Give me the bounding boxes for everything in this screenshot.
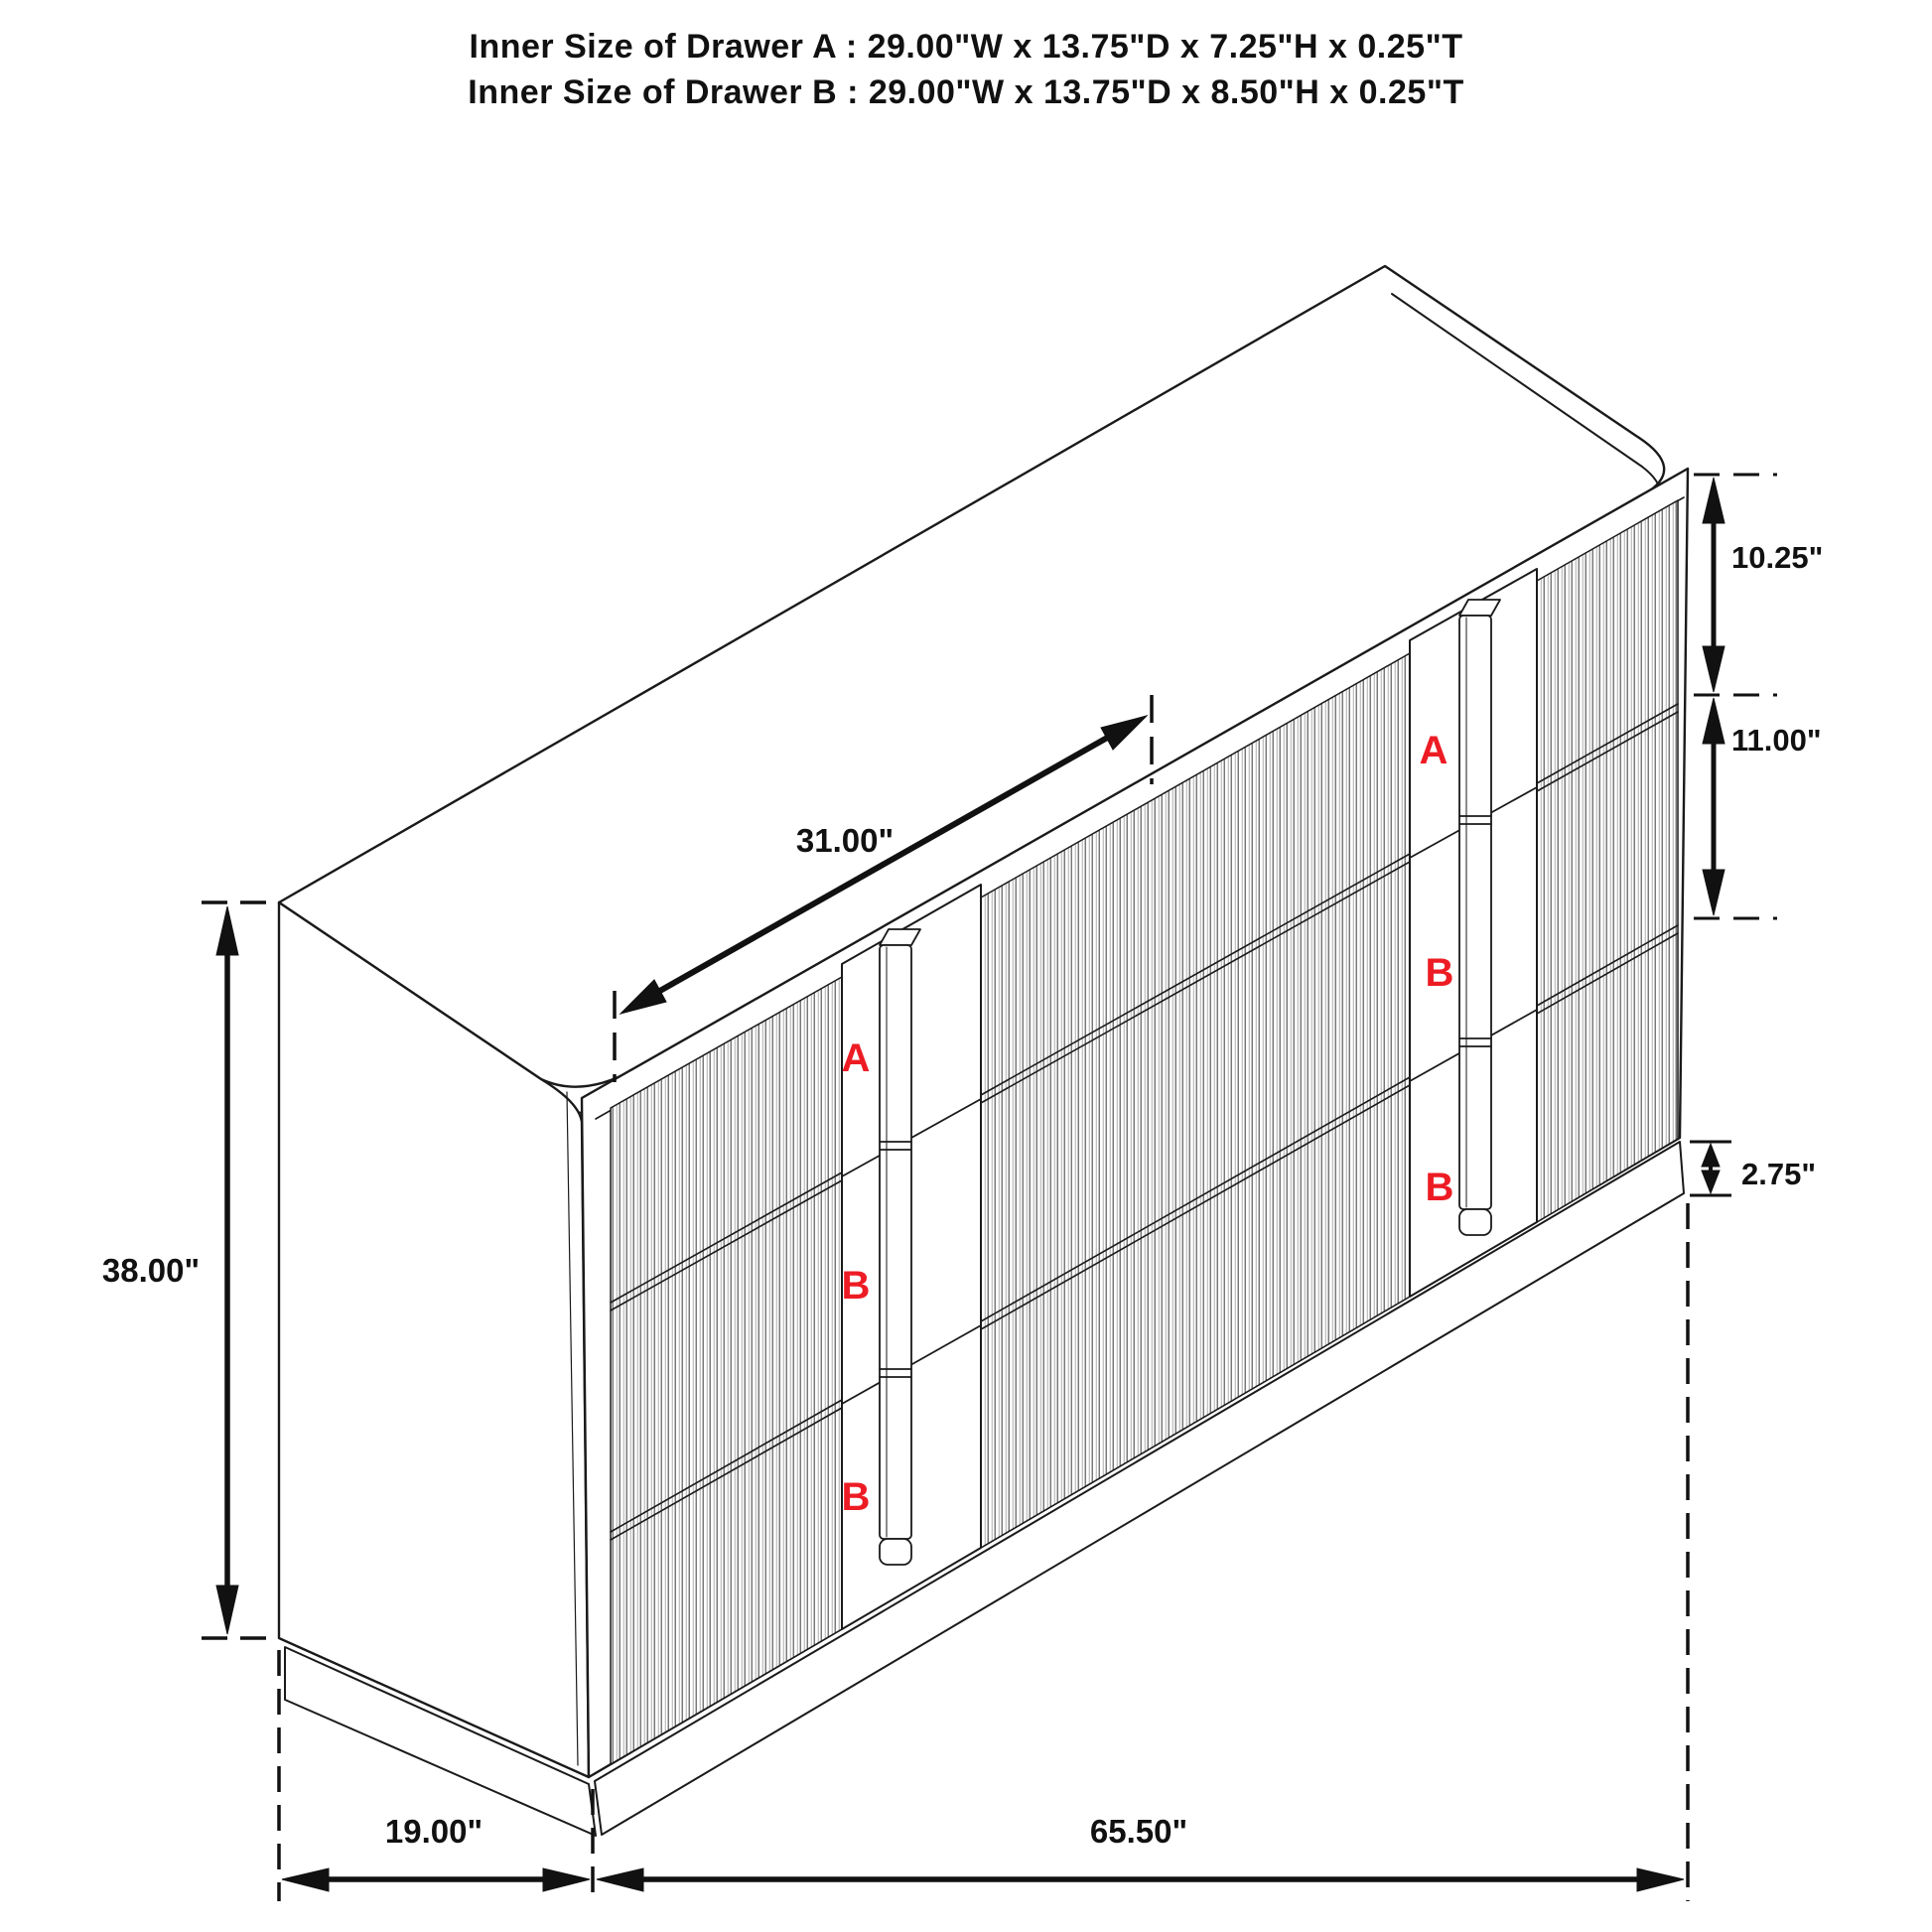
dimension-label-drawer-b-height: 11.00": [1731, 723, 1822, 758]
dimension-label-total-width: 65.50": [1090, 1813, 1187, 1850]
dimension-label-top-drawer-width: 31.00": [796, 822, 894, 859]
dimension-label-drawer-a-height: 10.25": [1731, 540, 1823, 575]
title-line-drawer-b: Inner Size of Drawer B : 29.00"W x 13.75…: [0, 69, 1932, 115]
drawer-label-right-b1: B: [1426, 951, 1454, 995]
dimension-total-height: [202, 902, 276, 1638]
arrowhead-left: [282, 1868, 329, 1891]
arrowhead-up: [216, 906, 238, 955]
arrowhead-down: [216, 1586, 238, 1634]
arrowhead-right: [543, 1868, 590, 1891]
arrowhead-up: [1702, 1144, 1720, 1167]
arrowhead-right: [1637, 1868, 1684, 1891]
dimension-label-base-height: 2.75": [1741, 1157, 1816, 1191]
arrowhead-left: [597, 1868, 643, 1891]
arrowhead-down: [1703, 870, 1725, 915]
arrowhead-down: [1703, 646, 1725, 692]
drawer-label-right-b2: B: [1426, 1166, 1454, 1209]
drawer-label-left-b1: B: [842, 1264, 871, 1308]
fluted-panel-left: [611, 977, 842, 1764]
title-block: Inner Size of Drawer A : 29.00"W x 13.75…: [0, 24, 1932, 115]
drawer-label-left-b2: B: [842, 1475, 871, 1519]
drawer-label-left-a: A: [842, 1036, 871, 1080]
dresser-dimension-diagram: A B B A B B 38.00" 19.00" 65.50": [0, 0, 1932, 1932]
dimension-drawer-a-height: [1694, 475, 1777, 695]
arrowhead-up: [1703, 698, 1725, 744]
dimension-base-height: [1690, 1142, 1731, 1195]
dimension-label-side-depth: 19.00": [385, 1813, 483, 1850]
dimension-label-total-height: 38.00": [102, 1252, 200, 1289]
drawer-label-right-a: A: [1420, 729, 1449, 772]
fluted-panel-right: [1537, 500, 1678, 1222]
title-line-drawer-a: Inner Size of Drawer A : 29.00"W x 13.75…: [0, 24, 1932, 69]
arrowhead-up: [1703, 478, 1725, 523]
arrowhead-down: [1702, 1171, 1720, 1193]
